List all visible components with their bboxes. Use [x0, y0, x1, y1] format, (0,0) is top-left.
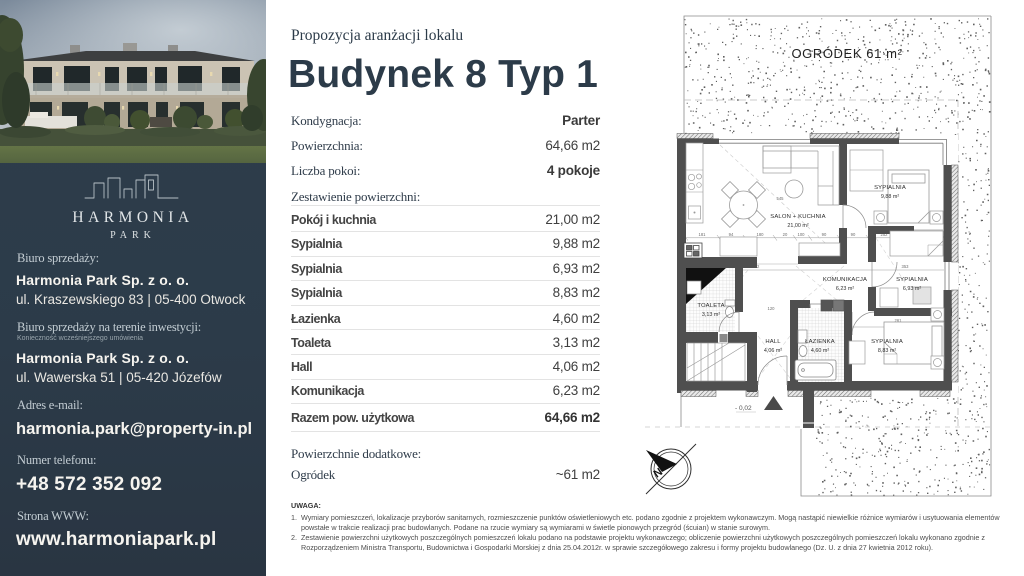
svg-text:180: 180: [757, 232, 765, 237]
svg-text:181: 181: [699, 232, 707, 237]
svg-text:3,13 m²: 3,13 m²: [702, 312, 720, 318]
svg-text:20: 20: [783, 232, 788, 237]
svg-text:9,88 m²: 9,88 m²: [881, 194, 899, 200]
svg-text:8,83 m²: 8,83 m²: [878, 348, 896, 354]
svg-text:4,60 m²: 4,60 m²: [811, 348, 829, 354]
svg-text:SYPIALNIA: SYPIALNIA: [896, 277, 928, 283]
svg-text:94: 94: [729, 232, 734, 237]
svg-text:4,06 m²: 4,06 m²: [764, 348, 782, 354]
svg-text:TOALETA: TOALETA: [697, 303, 724, 309]
svg-text:6,93 m²: 6,93 m²: [903, 286, 921, 292]
svg-text:- 0,02: - 0,02: [735, 405, 752, 412]
svg-text:21,00 m²: 21,00 m²: [787, 223, 808, 229]
svg-text:100: 100: [798, 232, 806, 237]
svg-text:KOMUNIKACJA: KOMUNIKACJA: [823, 277, 867, 283]
svg-text:SYPIALNIA: SYPIALNIA: [871, 339, 903, 345]
svg-text:SALON + KUCHNIA: SALON + KUCHNIA: [770, 214, 825, 220]
svg-text:353: 353: [902, 264, 910, 269]
svg-text:90: 90: [851, 232, 856, 237]
svg-text:HALL: HALL: [765, 339, 781, 345]
svg-text:SYPIALNIA: SYPIALNIA: [874, 185, 906, 191]
svg-text:6,23 m²: 6,23 m²: [836, 286, 854, 292]
svg-text:OGRÓDEK 61 m²: OGRÓDEK 61 m²: [791, 46, 902, 61]
svg-text:90: 90: [822, 232, 827, 237]
svg-text:ŁAZIENKA: ŁAZIENKA: [805, 339, 835, 345]
svg-text:120: 120: [768, 306, 776, 311]
